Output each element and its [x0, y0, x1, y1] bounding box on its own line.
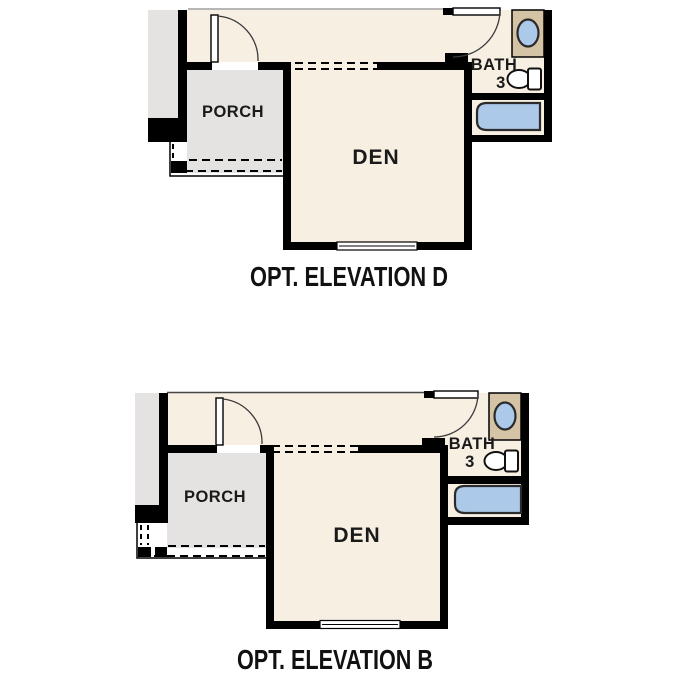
right-wall — [544, 10, 552, 142]
corner-wall-block — [148, 118, 187, 142]
bath-door-hinge-stub — [443, 8, 453, 15]
toilet-tank — [505, 451, 518, 472]
tub-room-wall — [448, 476, 529, 484]
right-wall — [521, 393, 529, 525]
porch-pier-block — [138, 547, 151, 557]
porch-pier-block — [155, 547, 167, 557]
porch-label: PORCH — [202, 103, 264, 121]
den-wall-right — [464, 62, 472, 250]
den-wall-left — [283, 62, 291, 250]
toilet-tank — [528, 69, 541, 90]
corner-wall-block — [135, 505, 168, 523]
floor-plan-elevation-d: PORCH DEN BATH 3 OPT. ELEVATION D — [148, 8, 552, 292]
den-wall-left — [266, 445, 274, 629]
bath-wall-bottom — [472, 135, 552, 142]
exterior-strip — [135, 393, 159, 505]
porch-label: PORCH — [184, 488, 246, 506]
exterior-strip — [148, 10, 178, 118]
bath-door-hinge-stub — [424, 391, 434, 398]
plan-caption-elevation-b: OPT. ELEVATION B — [237, 644, 433, 675]
bath-label: BATH — [471, 56, 518, 74]
bath-door-leaf — [434, 391, 478, 398]
porch-area — [187, 70, 283, 173]
floor-plan-elevation-b: PORCH DEN BATH 3 OPT. ELEVATION B — [135, 391, 529, 675]
bath-wall-bottom — [448, 517, 529, 525]
porch-wall-left — [167, 445, 217, 453]
bath-door-leaf — [453, 8, 500, 15]
porch-wall-left — [178, 62, 212, 70]
entry-door-leaf — [211, 15, 218, 62]
bath-label: BATH — [449, 435, 496, 453]
bathtub — [477, 103, 540, 130]
sink — [518, 20, 539, 47]
bath-number-label: 3 — [496, 74, 506, 92]
tub-room-wall — [472, 93, 552, 100]
entry-door-leaf — [216, 398, 223, 445]
bathtub — [455, 486, 521, 513]
sink — [495, 403, 516, 430]
plan-caption-elevation-d: OPT. ELEVATION D — [250, 261, 448, 292]
left-wall — [159, 393, 168, 523]
den-wall-right — [440, 445, 448, 629]
den-label: DEN — [333, 524, 380, 547]
den-label: DEN — [352, 146, 399, 169]
bath-door-catch-stub — [422, 438, 445, 447]
porch-pier-block — [171, 161, 187, 173]
floorplan-sheet: PORCH DEN BATH 3 OPT. ELEVATION D — [0, 0, 687, 687]
floorplan-drawing: PORCH DEN BATH 3 OPT. ELEVATION D — [0, 0, 687, 687]
bath-number-label: 3 — [465, 453, 475, 471]
den-wall-top — [377, 62, 472, 70]
